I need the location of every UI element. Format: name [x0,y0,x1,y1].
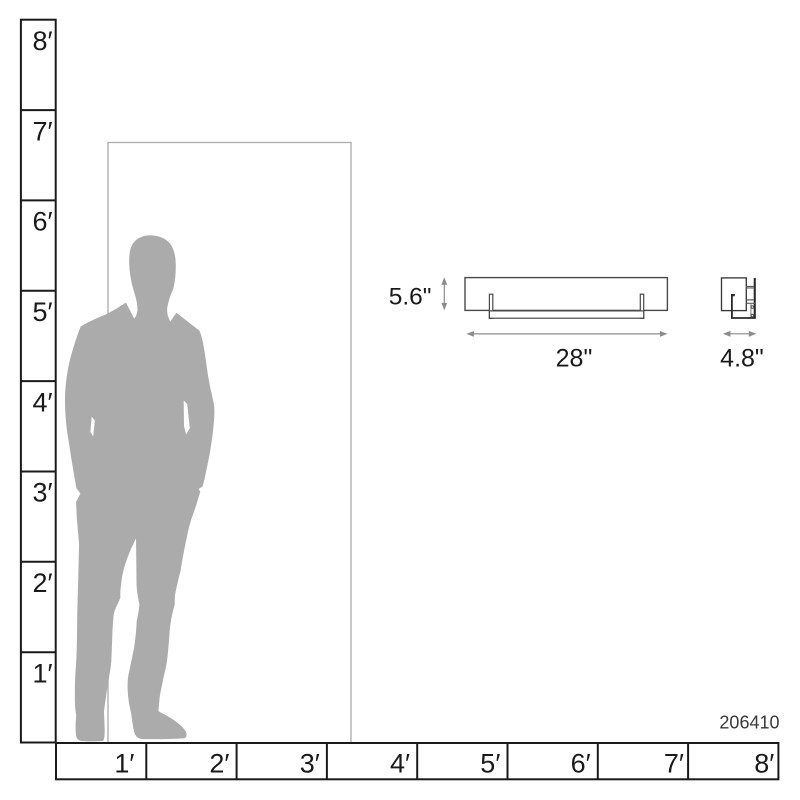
svg-text:206410: 206410 [719,712,779,732]
svg-text:3′: 3′ [300,748,320,778]
svg-text:5′: 5′ [480,748,500,778]
svg-text:6′: 6′ [33,207,53,237]
svg-text:6′: 6′ [571,748,591,778]
svg-text:2′: 2′ [33,568,53,598]
svg-text:2′: 2′ [209,748,229,778]
svg-text:4′: 4′ [390,748,410,778]
svg-text:28": 28" [556,344,593,372]
svg-text:4.8": 4.8" [720,344,764,372]
svg-text:5′: 5′ [33,297,53,327]
svg-text:8′: 8′ [754,748,774,778]
svg-text:1′: 1′ [33,658,53,688]
svg-text:1′: 1′ [114,748,134,778]
svg-text:8′: 8′ [33,26,53,56]
svg-text:7′: 7′ [33,116,53,146]
svg-text:5.6": 5.6" [389,283,432,310]
svg-text:4′: 4′ [33,387,53,417]
svg-text:3′: 3′ [33,478,53,508]
svg-text:7′: 7′ [664,748,684,778]
